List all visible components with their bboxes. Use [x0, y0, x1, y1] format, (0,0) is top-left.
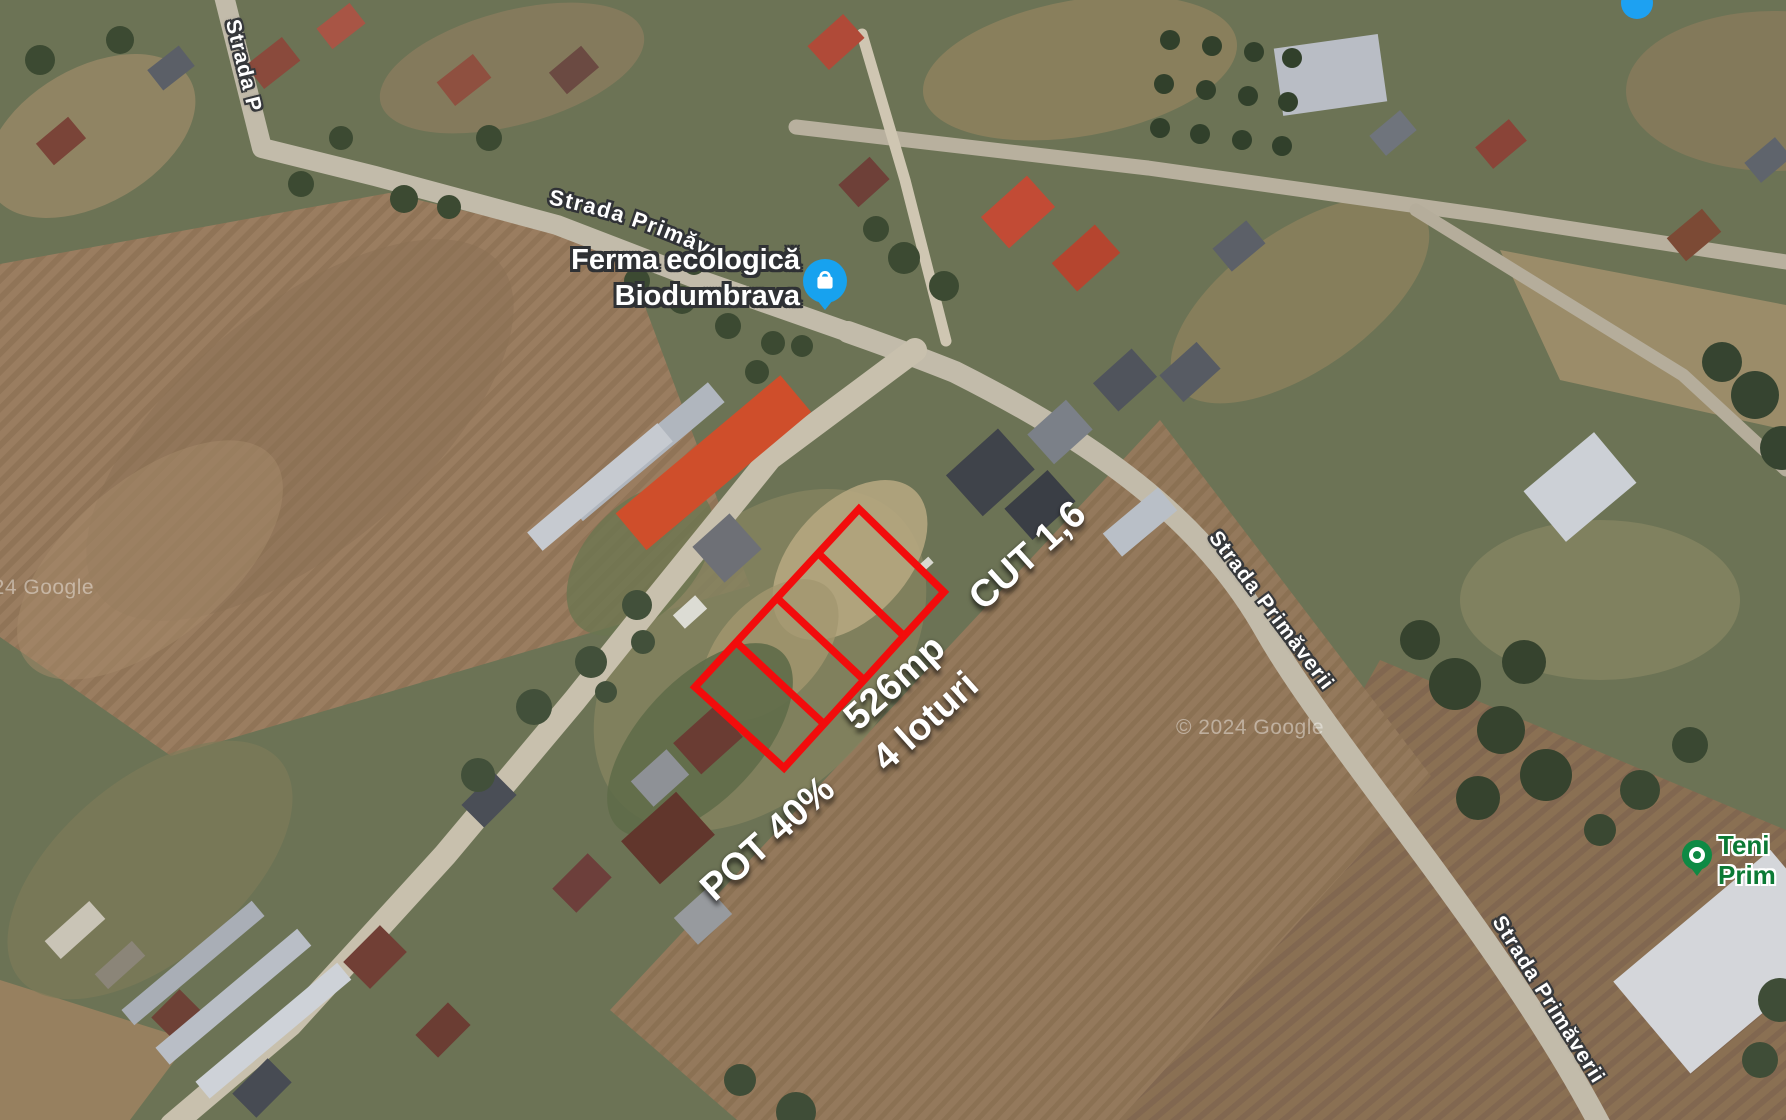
pin-tail: [1691, 868, 1703, 876]
poi-ferma-line1[interactable]: Ferma ecologică: [500, 242, 800, 278]
poi-label-park[interactable]: Teni Prim: [1718, 830, 1776, 890]
pin-tail: [817, 300, 833, 310]
poi-label-ferma[interactable]: Ferma ecologică Biodumbrava: [500, 242, 800, 314]
pin-ring: [1689, 847, 1705, 863]
shopping-bag-glyph: [812, 268, 838, 294]
park-pin-icon[interactable]: [1682, 840, 1712, 870]
shopping-bag-pin-icon[interactable]: [803, 259, 847, 303]
poi-ferma-line2[interactable]: Biodumbrava: [500, 278, 800, 314]
satellite-map[interactable]: © 2024 Google © 2024 Google Strada P Str…: [0, 0, 1786, 1120]
poi-park-line1[interactable]: Teni: [1718, 830, 1776, 860]
poi-park-line2[interactable]: Prim: [1718, 860, 1776, 890]
